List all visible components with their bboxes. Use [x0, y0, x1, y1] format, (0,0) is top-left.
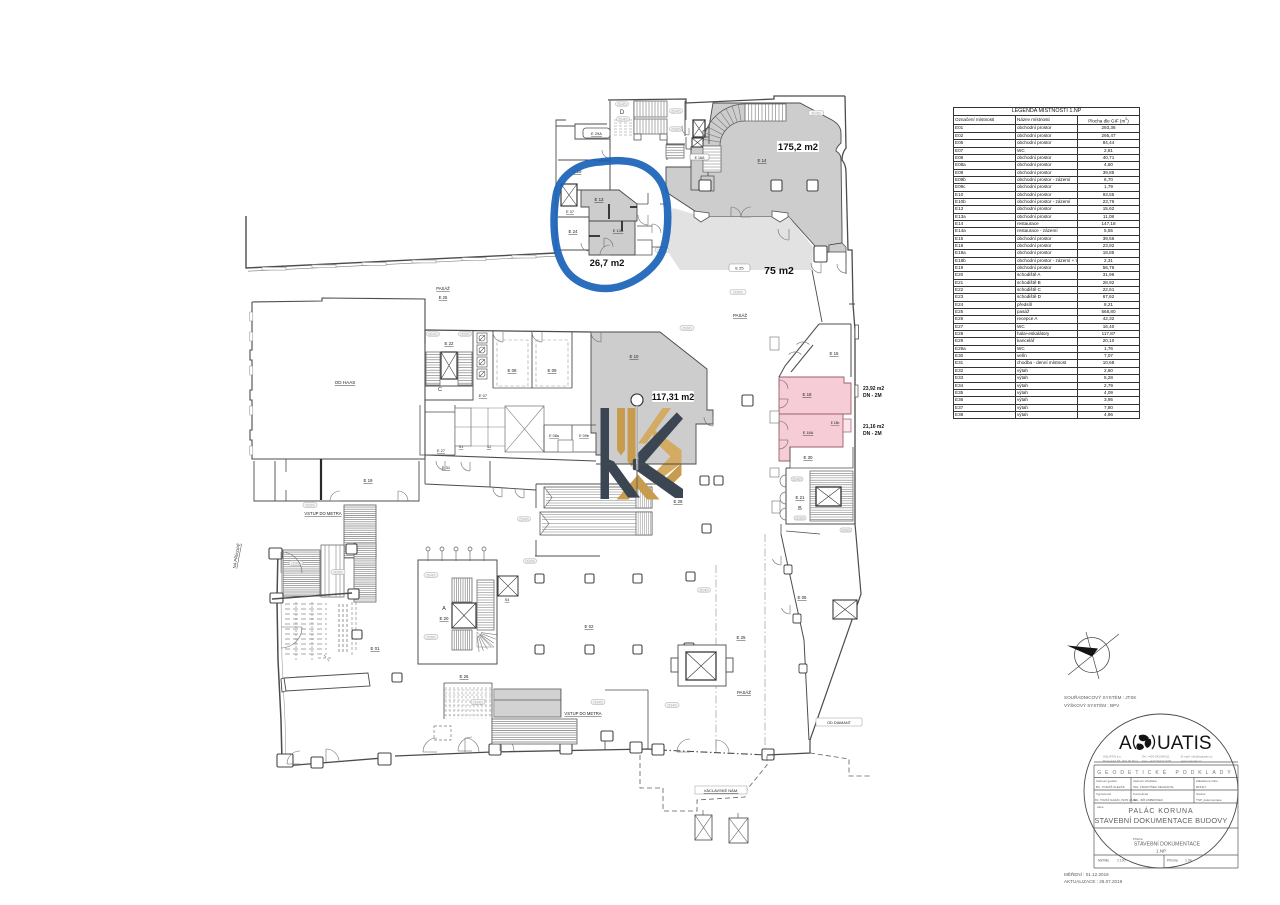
- svg-text:E 28: E 28: [673, 499, 683, 504]
- svg-text:ING. FRANTIŠEK NEUHÄUSL: ING. FRANTIŠEK NEUHÄUSL: [1133, 784, 1174, 789]
- svg-text:E 25: E 25: [439, 295, 448, 300]
- svg-text:E 37: E 37: [566, 209, 574, 214]
- svg-text:www.aquatis.cz: www.aquatis.cz: [1181, 759, 1202, 763]
- svg-text:E 18: E 18: [802, 392, 812, 397]
- svg-text:(5280): (5280): [682, 326, 691, 330]
- svg-text:E 09: E 09: [547, 368, 557, 373]
- svg-text:DN - 2M: DN - 2M: [863, 393, 882, 399]
- svg-text:1:100: 1:100: [1117, 859, 1126, 863]
- svg-text:Měřítko: Měřítko: [1098, 859, 1109, 863]
- svg-text:75 m2: 75 m2: [764, 265, 794, 277]
- svg-text:E 20: E 20: [439, 616, 449, 621]
- svg-text:(5280): (5280): [795, 516, 804, 520]
- svg-text:(5280): (5280): [333, 570, 342, 574]
- svg-text:117,31 m2: 117,31 m2: [652, 392, 695, 402]
- svg-text:PASÁŽ: PASÁŽ: [737, 690, 751, 695]
- svg-text:1.NP: 1.NP: [1156, 849, 1166, 854]
- svg-text:B15417: B15417: [1196, 785, 1207, 789]
- svg-text:(5280): (5280): [733, 290, 742, 294]
- svg-text:E 22: E 22: [444, 341, 454, 346]
- svg-text:E 09b: E 09b: [579, 434, 589, 438]
- svg-text:175,2 m2: 175,2 m2: [778, 142, 818, 153]
- svg-text:(5x40): (5x40): [699, 588, 708, 592]
- svg-text:STAVEBNÍ DOKUMENTACE BUDOVY: STAVEBNÍ DOKUMENTACE BUDOVY: [1094, 816, 1227, 825]
- svg-text:E 21: E 21: [795, 495, 805, 500]
- svg-text:B: B: [798, 506, 802, 512]
- svg-text:(5x40): (5x40): [618, 117, 627, 121]
- svg-text:S1: S1: [459, 445, 464, 449]
- svg-text:(5x40): (5x40): [617, 102, 626, 106]
- svg-text:(5x48): (5x48): [811, 111, 820, 115]
- svg-text:TNP_dokumentace: TNP_dokumentace: [1196, 798, 1222, 802]
- svg-text:GEODETICKÉ PODKLADY: GEODETICKÉ PODKLADY: [1097, 769, 1234, 776]
- svg-text:Vedoucí geodet: Vedoucí geodet: [1096, 779, 1117, 783]
- svg-text:OD HAAS: OD HAAS: [335, 380, 356, 385]
- svg-text:1.04: 1.04: [1185, 859, 1192, 863]
- svg-text:(5340): (5340): [667, 703, 676, 707]
- svg-text:E 31: E 31: [442, 465, 451, 470]
- svg-text:E 08: E 08: [507, 368, 517, 373]
- svg-text:E 18b: E 18b: [831, 421, 840, 425]
- svg-text:E 01: E 01: [370, 646, 380, 651]
- svg-text:Fax: +420 541211205: Fax: +420 541211205: [1142, 759, 1171, 763]
- svg-text:Soubor: Soubor: [1196, 792, 1206, 796]
- svg-text:Akce: Akce: [1097, 805, 1104, 809]
- svg-text:VSTUP DO METRA: VSTUP DO METRA: [564, 711, 601, 716]
- svg-text:E 15: E 15: [829, 351, 839, 356]
- svg-text:STAVEBNÍ DOKUMENTACE: STAVEBNÍ DOKUMENTACE: [1134, 841, 1201, 848]
- svg-text:DN - 2M: DN - 2M: [863, 431, 882, 437]
- svg-text:S4: S4: [505, 598, 510, 602]
- svg-text:A: A: [1119, 733, 1132, 754]
- svg-text:(5x40): (5x40): [671, 109, 680, 113]
- svg-text:(5340): (5340): [519, 517, 528, 521]
- svg-text:E 07: E 07: [479, 393, 488, 398]
- svg-text:Vedoucí střediska: Vedoucí střediska: [1133, 779, 1157, 783]
- svg-text:E 25: E 25: [736, 635, 746, 640]
- svg-text:AKTUALIZACE : 26.07.2019: AKTUALIZACE : 26.07.2019: [1064, 879, 1123, 884]
- svg-text:21,16 m2: 21,16 m2: [863, 424, 884, 430]
- svg-text:VÁCLAVSKÉ NÁM.: VÁCLAVSKÉ NÁM.: [704, 788, 739, 793]
- svg-text:VSTUP DO METRA: VSTUP DO METRA: [304, 511, 341, 516]
- svg-text:(5280): (5280): [671, 127, 680, 131]
- svg-text:AQUATIS a.s.: AQUATIS a.s.: [1103, 755, 1122, 759]
- svg-text:(5280): (5280): [841, 528, 850, 532]
- svg-text:E 14: E 14: [757, 158, 767, 163]
- svg-text:(5x40): (5x40): [428, 332, 437, 336]
- svg-text:MĚŘENÍ : 01.12.2016: MĚŘENÍ : 01.12.2016: [1064, 870, 1109, 877]
- svg-text:(5280): (5280): [426, 635, 435, 639]
- svg-text:E 25: E 25: [735, 266, 744, 271]
- svg-text:(5x40): (5x40): [792, 477, 801, 481]
- svg-text:E 24: E 24: [568, 229, 578, 234]
- svg-text:Zakázkové číslo: Zakázkové číslo: [1196, 779, 1218, 783]
- svg-text:E 13: E 13: [594, 197, 604, 202]
- svg-text:D: D: [620, 110, 625, 116]
- svg-text:E 08a: E 08a: [549, 434, 560, 438]
- svg-text:E 18A: E 18A: [803, 430, 814, 435]
- svg-text:PALÁC KORUNA: PALÁC KORUNA: [1128, 806, 1193, 815]
- svg-text:ING. JIŘÍ AMBROSEK: ING. JIŘÍ AMBROSEK: [1133, 797, 1163, 802]
- svg-text:(5280): (5280): [305, 503, 314, 507]
- svg-text:(5340): (5340): [473, 700, 482, 704]
- svg-text:A: A: [442, 606, 446, 612]
- svg-text:SOUŘADNICOVÝ SYSTÉM : JTSK: SOUŘADNICOVÝ SYSTÉM : JTSK: [1064, 693, 1137, 700]
- svg-text:(5280): (5280): [460, 332, 469, 336]
- svg-text:C: C: [438, 387, 442, 393]
- svg-text:E 10: E 10: [629, 354, 639, 359]
- svg-text:E 02: E 02: [584, 624, 594, 629]
- svg-text:VÝŠKOVÝ SYSTÉM : BPV: VÝŠKOVÝ SYSTÉM : BPV: [1064, 702, 1120, 708]
- svg-text:(5340): (5340): [525, 559, 534, 563]
- svg-text:E 30: E 30: [803, 455, 813, 460]
- svg-text:UATIS: UATIS: [1157, 733, 1212, 754]
- svg-text:Botanická 56, 602 00 Brno: Botanická 56, 602 00 Brno: [1103, 759, 1139, 763]
- svg-text:E-mail: info@aquatis.cz: E-mail: info@aquatis.cz: [1181, 755, 1213, 759]
- svg-text:E 29A: E 29A: [591, 131, 602, 136]
- svg-text:BC. TOMÁŠ SLEZÁK: BC. TOMÁŠ SLEZÁK: [1096, 784, 1125, 789]
- svg-text:E 27: E 27: [437, 448, 445, 453]
- svg-text:Vypracoval: Vypracoval: [1096, 792, 1111, 796]
- svg-text:(5x40): (5x40): [426, 573, 435, 577]
- svg-text:PASÁŽ: PASÁŽ: [436, 286, 450, 291]
- svg-text:S2: S2: [487, 445, 492, 449]
- svg-text:OD DIAMANT: OD DIAMANT: [827, 721, 852, 725]
- svg-text:Příloha: Příloha: [1133, 837, 1143, 841]
- svg-text:PASÁŽ: PASÁŽ: [733, 313, 747, 318]
- svg-text:E 05: E 05: [797, 595, 807, 600]
- svg-text:Příloha: Příloha: [1167, 859, 1178, 863]
- svg-text:E 26: E 26: [459, 674, 469, 679]
- svg-text:E 19: E 19: [363, 478, 373, 483]
- svg-text:Kontroloval: Kontroloval: [1133, 792, 1148, 796]
- svg-text:23,92 m2: 23,92 m2: [863, 386, 884, 392]
- svg-text:E 16A: E 16A: [695, 156, 705, 160]
- svg-text:(5340): (5340): [593, 700, 602, 704]
- svg-text:Tel: +420 541554111: Tel: +420 541554111: [1142, 755, 1170, 759]
- svg-text:26,7 m2: 26,7 m2: [590, 258, 625, 269]
